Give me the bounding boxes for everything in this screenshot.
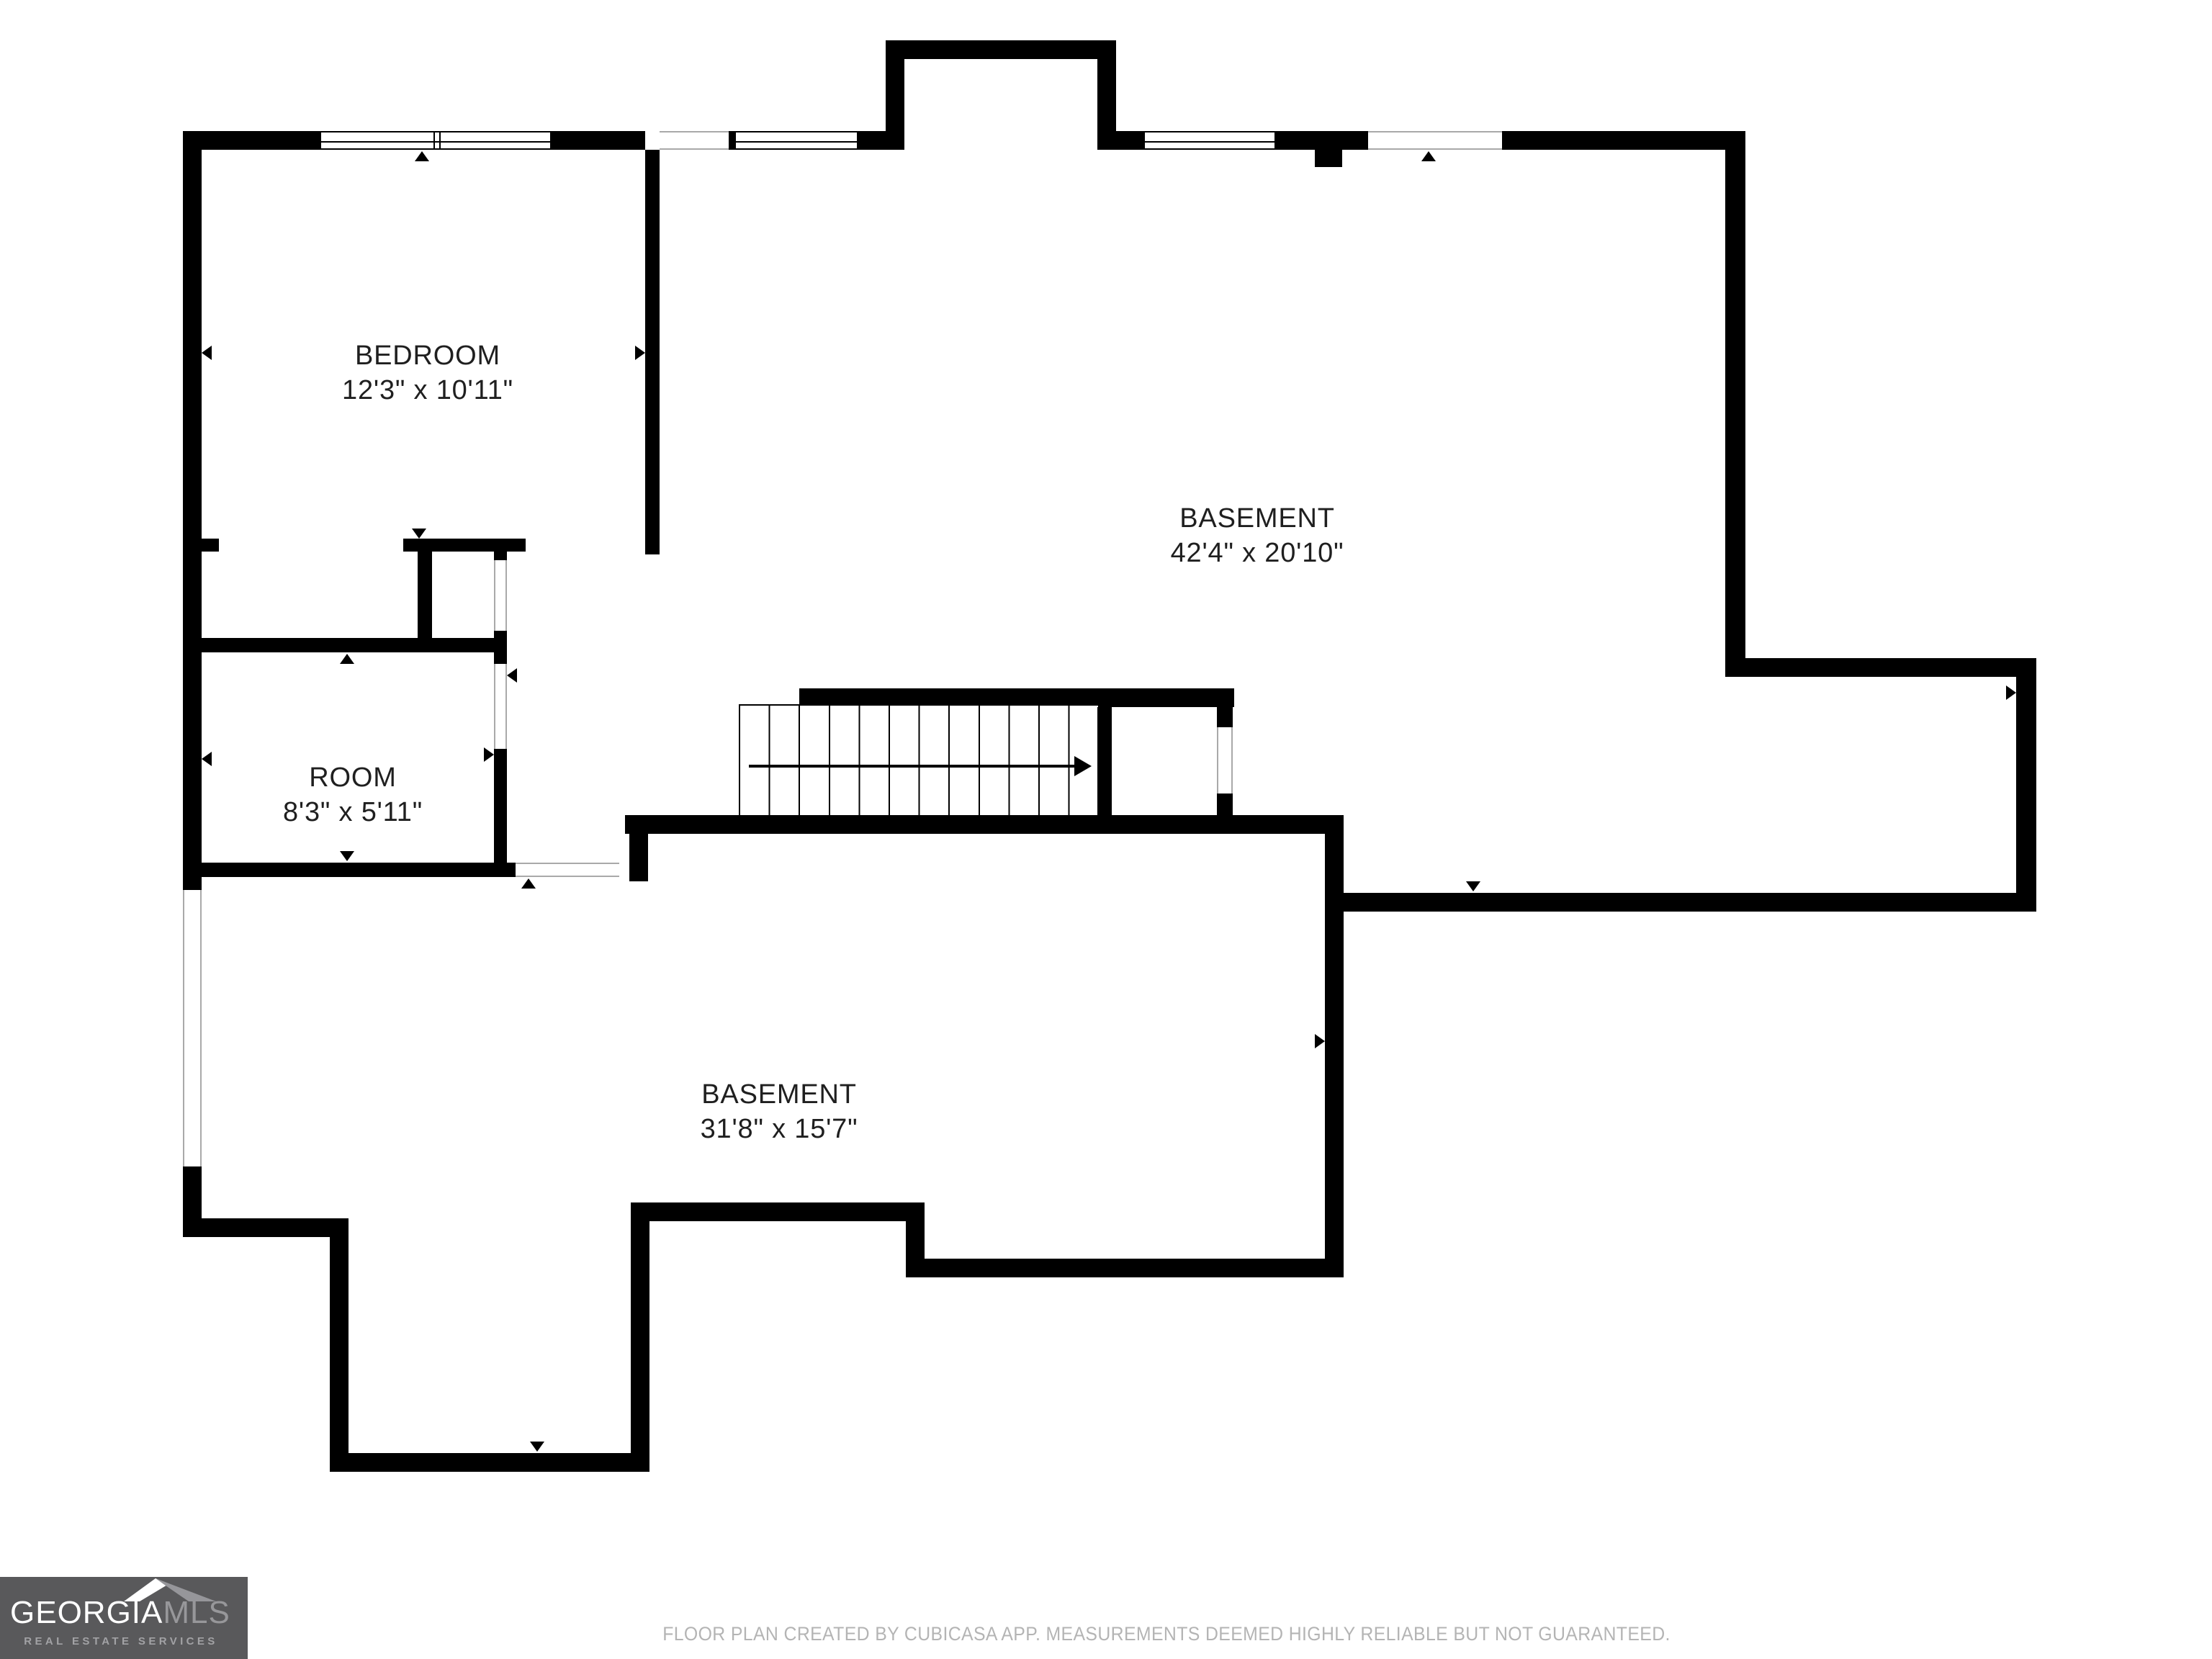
room-label-basement-lower: BASEMENT 31'8" x 15'7"	[606, 1079, 952, 1148]
wall-segment	[1097, 707, 1112, 815]
opening-marker-up	[1421, 151, 1436, 161]
disclaimer-text: FLOOR PLAN CREATED BY CUBICASA APP. MEAS…	[204, 1623, 2128, 1645]
opening-marker-up	[415, 151, 429, 161]
stair-walk-line	[749, 765, 1077, 768]
wall-segment	[645, 150, 660, 554]
wall-segment	[906, 1259, 1344, 1277]
opening-marker-right	[484, 747, 494, 762]
stair-direction-arrow	[1074, 756, 1092, 776]
wall-segment	[1725, 131, 1745, 677]
room-label-bedroom: BEDROOM 12'3" x 10'11"	[284, 340, 572, 409]
room-name: ROOM	[209, 762, 497, 796]
opening-marker-left	[507, 668, 517, 683]
window-glass-line	[315, 140, 556, 142]
opening-marker-down	[412, 529, 426, 539]
room-name: BEDROOM	[284, 340, 572, 374]
wall-segment	[183, 1166, 202, 1237]
wall-segment	[2016, 658, 2036, 912]
room-dimensions: 31'8" x 15'7"	[606, 1113, 952, 1148]
wall-segment	[631, 1202, 649, 1472]
opening-marker-down	[530, 1442, 544, 1452]
room-name: BASEMENT	[1084, 503, 1430, 537]
staircase	[739, 704, 1100, 817]
window-divider	[433, 132, 435, 148]
room-label-room: ROOM 8'3" x 5'11"	[209, 762, 497, 831]
wall-segment	[330, 1453, 649, 1472]
window	[314, 131, 557, 150]
wall-segment	[557, 131, 645, 150]
logo-brand-suffix: MLS	[163, 1594, 230, 1630]
opening-marker-down	[340, 851, 354, 861]
room-label-basement-upper: BASEMENT 42'4" x 20'10"	[1084, 503, 1430, 572]
wall-segment	[330, 1218, 349, 1472]
window-glass-line	[730, 140, 863, 142]
window	[729, 131, 864, 150]
opening-marker-down	[1466, 881, 1480, 891]
wall-segment	[1502, 131, 1745, 150]
wall-segment	[864, 131, 886, 150]
wall-segment	[1282, 131, 1368, 150]
wall-segment	[494, 552, 507, 560]
opening-marker-up	[340, 654, 354, 664]
opening-marker-up	[521, 878, 536, 889]
room-dimensions: 42'4" x 20'10"	[1084, 537, 1430, 572]
wall-pier	[1315, 150, 1342, 167]
door-opening	[494, 560, 507, 631]
logo-wordmark: GEORGIAMLS	[10, 1594, 230, 1632]
wall-segment	[1325, 893, 2036, 912]
room-name: BASEMENT	[606, 1079, 952, 1113]
door-opening	[1217, 727, 1233, 793]
georgia-mls-logo: GEORGIAMLS REAL ESTATE SERVICES	[0, 1577, 248, 1659]
wall-opening	[1368, 131, 1502, 150]
window-divider	[439, 132, 441, 148]
door-opening	[494, 664, 507, 749]
opening-marker-right	[635, 346, 645, 360]
window	[1138, 131, 1282, 150]
wall-segment	[1217, 707, 1233, 727]
wall-segment	[403, 539, 526, 552]
wall-segment	[1217, 793, 1233, 815]
opening-marker-right	[1315, 1034, 1325, 1048]
floor-plan: BEDROOM 12'3" x 10'11" BASEMENT 42'4" x …	[0, 0, 2212, 1659]
wall-segment	[187, 131, 314, 150]
opening-marker-right	[2006, 685, 2016, 700]
wall-opening	[516, 863, 619, 877]
room-dimensions: 8'3" x 5'11"	[209, 796, 497, 831]
wall-segment	[1097, 40, 1116, 150]
wall-segment	[625, 815, 1344, 834]
garage-door-opening	[183, 890, 202, 1166]
wall-segment	[631, 1202, 925, 1221]
wall-segment	[1116, 131, 1138, 150]
wall-segment	[200, 863, 516, 877]
room-dimensions: 12'3" x 10'11"	[284, 374, 572, 409]
wall-segment	[183, 131, 202, 890]
wall-segment	[200, 638, 504, 652]
opening-marker-left	[202, 346, 212, 360]
wall-segment	[1325, 815, 1344, 1277]
wall-segment	[1725, 658, 2036, 677]
wall-segment	[202, 1218, 349, 1237]
wall-opening	[660, 131, 729, 150]
wall-segment	[183, 539, 219, 552]
logo-brand: GEORGIA	[10, 1594, 163, 1630]
wall-segment	[418, 552, 432, 638]
window-glass-line	[1139, 140, 1280, 142]
logo-tagline: REAL ESTATE SERVICES	[0, 1635, 242, 1647]
wall-segment	[886, 40, 1116, 59]
